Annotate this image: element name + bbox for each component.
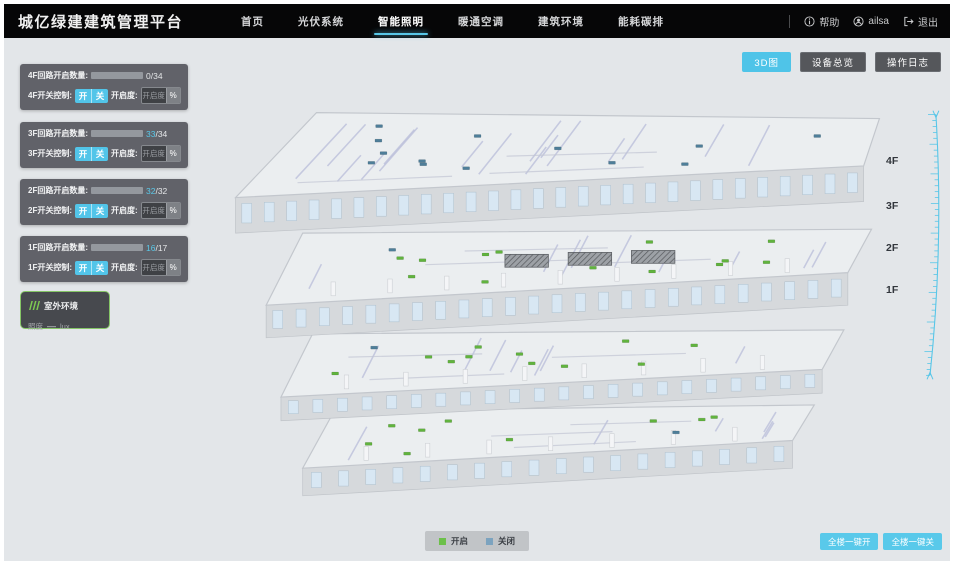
switch-off-button[interactable]: 关: [91, 204, 108, 218]
circuit-count-label: 1F回路开启数量:: [28, 242, 88, 253]
legend-item-on: 开启: [439, 535, 468, 547]
logout-label: 退出: [918, 14, 938, 29]
topbar-divider: [789, 15, 790, 28]
circuit-count-label: 2F回路开启数量:: [28, 185, 88, 196]
outdoor-environment-panel: 室外环境 照度 — lux: [20, 291, 110, 329]
floor-label-1f[interactable]: 1F: [886, 284, 898, 296]
top-navigation-bar: 城亿绿建建筑管理平台 首页 光伏系统 智能照明 暖通空调 建筑环境 能耗碳排 帮…: [4, 4, 950, 38]
dim-percent-button[interactable]: %: [166, 146, 180, 161]
user-menu[interactable]: ailsa: [853, 16, 889, 27]
floor-label-4f[interactable]: 4F: [886, 155, 898, 167]
illuminance-unit: lux: [60, 322, 70, 331]
dim-percent-button[interactable]: %: [166, 88, 180, 103]
view-3d-button[interactable]: 3D图: [742, 52, 791, 72]
legend-item-off: 关闭: [486, 535, 515, 547]
switch-off-button[interactable]: 关: [91, 261, 108, 275]
legend-on-swatch: [439, 538, 446, 545]
circuit-progress-bar: [91, 244, 143, 251]
nav-item-hvac[interactable]: 暖通空调: [456, 10, 506, 33]
switch-on-button[interactable]: 开: [75, 261, 91, 275]
dim-input-group: 开启度%: [141, 259, 181, 276]
circuit-count-label: 4F回路开启数量:: [28, 70, 88, 81]
switch-on-button[interactable]: 开: [75, 204, 91, 218]
dim-input[interactable]: 开启度: [142, 260, 166, 275]
view-mode-buttons: 3D图 设备总览 操作日志: [742, 52, 941, 72]
device-overview-button[interactable]: 设备总览: [800, 52, 866, 72]
help-button[interactable]: 帮助: [804, 14, 839, 29]
switch-control-label: 4F开关控制:: [28, 90, 72, 101]
switch-control-label: 1F开关控制:: [28, 262, 72, 273]
logout-icon: [903, 16, 914, 27]
main-nav: 首页 光伏系统 智能照明 暖通空调 建筑环境 能耗碳排: [239, 10, 666, 33]
user-avatar-icon: [853, 16, 864, 27]
switch-group: 开关: [75, 204, 108, 218]
dim-input[interactable]: 开启度: [142, 88, 166, 103]
user-name: ailsa: [868, 16, 889, 27]
circuit-progress-bar: [91, 72, 143, 79]
dim-input-group: 开启度%: [141, 202, 181, 219]
dim-label: 开启度:: [111, 148, 138, 159]
switch-group: 开关: [75, 147, 108, 161]
switch-control-label: 2F开关控制:: [28, 205, 72, 216]
nav-item-pv-system[interactable]: 光伏系统: [296, 10, 346, 33]
help-icon: [804, 16, 815, 27]
floor-label-3f[interactable]: 3F: [886, 200, 898, 212]
switch-on-button[interactable]: 开: [75, 147, 91, 161]
circuit-progress-bar: [91, 130, 143, 137]
switch-control-label: 3F开关控制:: [28, 148, 72, 159]
switch-off-button[interactable]: 关: [91, 147, 108, 161]
circuit-count-value: 0/34: [146, 71, 163, 81]
dim-label: 开启度:: [111, 205, 138, 216]
dim-input[interactable]: 开启度: [142, 203, 166, 218]
circuit-count-value: 33/34: [146, 129, 167, 139]
switch-group: 开关: [75, 89, 108, 103]
illuminance-value: —: [47, 321, 56, 331]
app-title: 城亿绿建建筑管理平台: [18, 11, 183, 32]
switch-on-button[interactable]: 开: [75, 89, 91, 103]
topbar-right: 帮助 ailsa 退出: [789, 14, 938, 29]
legend-off-swatch: [486, 538, 493, 545]
floor-ruler-scale[interactable]: [910, 4, 950, 561]
switch-off-button[interactable]: 关: [91, 89, 108, 103]
circuit-count-value: 32/32: [146, 186, 167, 196]
floor-label-2f[interactable]: 2F: [886, 242, 898, 254]
all-on-button[interactable]: 全楼一键开: [820, 533, 879, 550]
help-label: 帮助: [819, 14, 839, 29]
circuit-count-value: 16/17: [146, 243, 167, 253]
illuminance-label: 照度: [28, 321, 43, 332]
dim-label: 开启度:: [111, 90, 138, 101]
floor-panel-3f: 3F回路开启数量: 33/34 3F开关控制: 开关 开启度: 开启度%: [20, 122, 188, 168]
outdoor-env-icon: [28, 297, 40, 315]
screen-frame: 城亿绿建建筑管理平台 首页 光伏系统 智能照明 暖通空调 建筑环境 能耗碳排 帮…: [0, 0, 953, 564]
floor-panel-2f: 2F回路开启数量: 32/32 2F开关控制: 开关 开启度: 开启度%: [20, 179, 188, 225]
circuit-progress-bar: [91, 187, 143, 194]
all-off-button[interactable]: 全楼一键关: [883, 533, 942, 550]
nav-item-energy-carbon[interactable]: 能耗碳排: [616, 10, 666, 33]
nav-item-home[interactable]: 首页: [239, 10, 266, 33]
dim-percent-button[interactable]: %: [166, 260, 180, 275]
switch-group: 开关: [75, 261, 108, 275]
nav-item-smart-lighting[interactable]: 智能照明: [376, 10, 426, 33]
operation-log-button[interactable]: 操作日志: [875, 52, 941, 72]
circuit-count-label: 3F回路开启数量:: [28, 128, 88, 139]
app-window: 城亿绿建建筑管理平台 首页 光伏系统 智能照明 暖通空调 建筑环境 能耗碳排 帮…: [4, 4, 950, 561]
legend-on-label: 开启: [451, 535, 468, 547]
logout-button[interactable]: 退出: [903, 14, 938, 29]
dim-input[interactable]: 开启度: [142, 146, 166, 161]
dim-percent-button[interactable]: %: [166, 203, 180, 218]
bulk-action-buttons: 全楼一键开 全楼一键关: [820, 533, 942, 550]
status-legend: 开启 关闭: [425, 531, 529, 551]
legend-off-label: 关闭: [498, 535, 515, 547]
dim-input-group: 开启度%: [141, 145, 181, 162]
outdoor-env-title: 室外环境: [44, 300, 78, 312]
dim-label: 开启度:: [111, 262, 138, 273]
nav-item-building-env[interactable]: 建筑环境: [536, 10, 586, 33]
floor-panel-4f: 4F回路开启数量: 0/34 4F开关控制: 开关 开启度: 开启度%: [20, 64, 188, 110]
dim-input-group: 开启度%: [141, 87, 181, 104]
floor-panel-1f: 1F回路开启数量: 16/17 1F开关控制: 开关 开启度: 开启度%: [20, 236, 188, 282]
